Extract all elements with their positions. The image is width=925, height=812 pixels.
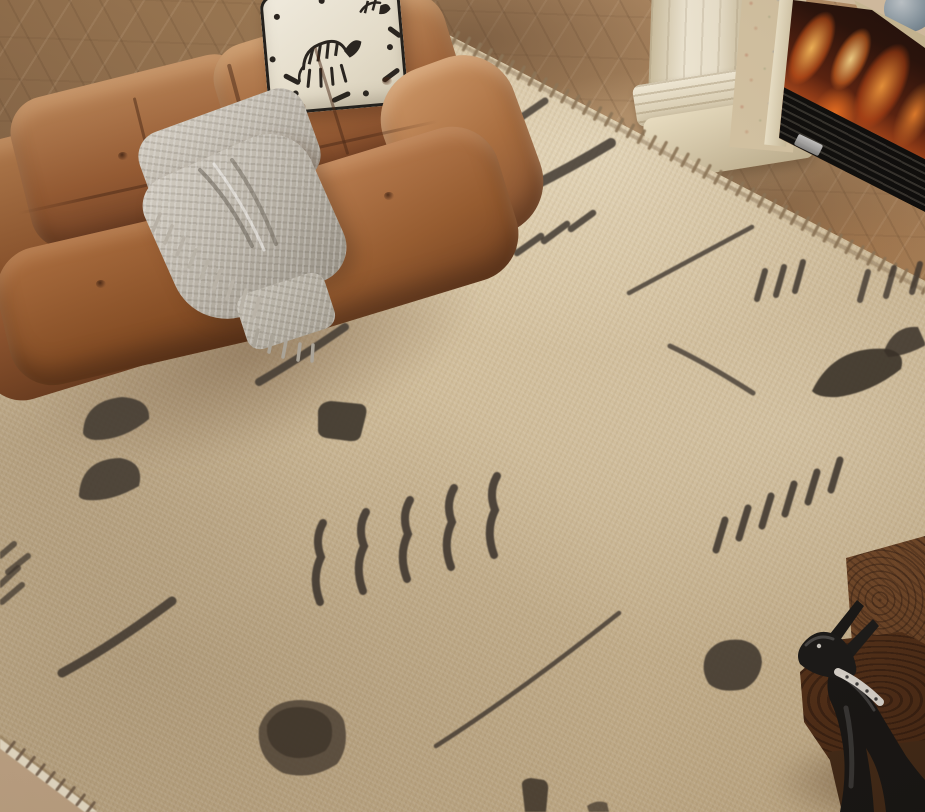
sofa-tuft-dimple: [118, 152, 128, 160]
sofa-tuft-dimple: [384, 192, 394, 200]
leather-sofa: [0, 0, 925, 812]
sofa-tuft-dimple: [96, 280, 106, 288]
sofa-tuft-dimple: [382, 77, 392, 85]
living-room-photo: Photograph of a living room: caramel tuf…: [0, 0, 925, 812]
